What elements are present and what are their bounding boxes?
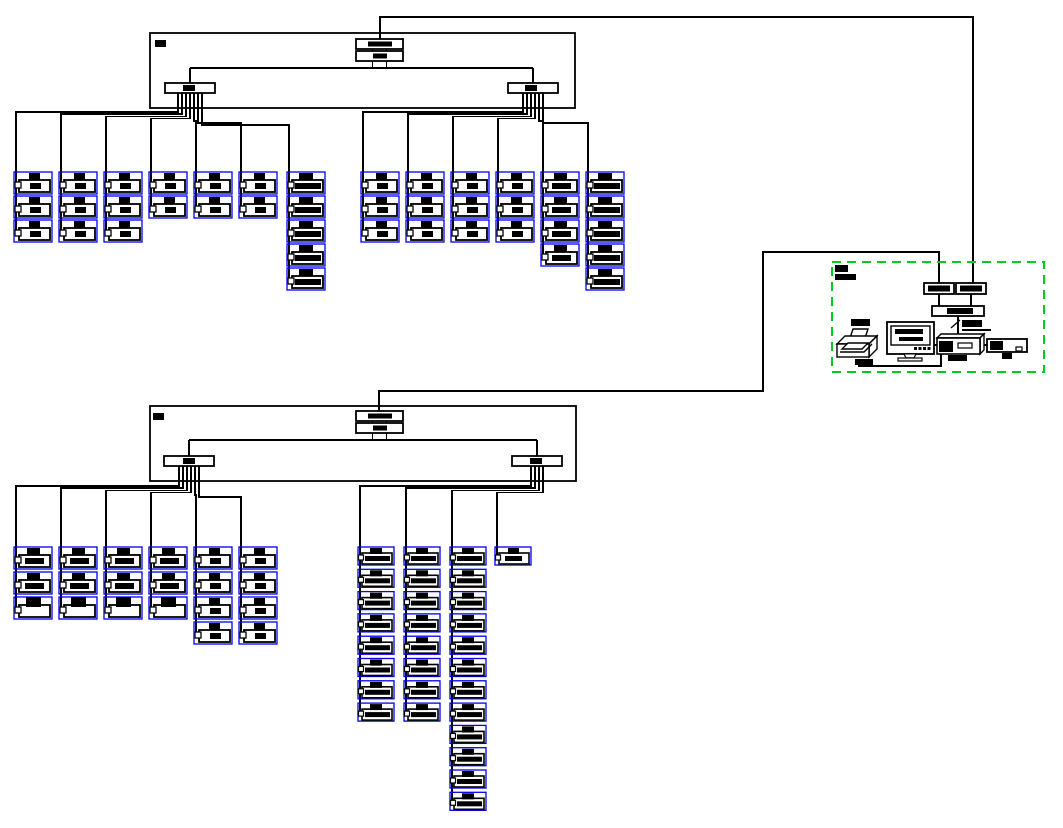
monitoring-station [832,262,1044,372]
station-title-blob-1 [835,265,848,272]
device-block-type-A[interactable] [104,172,142,194]
device-block-type-A[interactable] [194,547,232,569]
device-block-type-A[interactable] [59,172,97,194]
riser-2-left-column-3 [104,547,142,619]
device-block-type-B[interactable] [404,569,440,587]
panel-1-title-blob [155,40,166,47]
device-block-type-A[interactable] [194,572,232,594]
device-block-type-B[interactable] [287,196,325,218]
device-block-type-M[interactable] [59,572,97,594]
device-block-type-A[interactable] [406,220,444,242]
device-block-type-B[interactable] [358,569,394,587]
device-block-type-M[interactable] [14,547,52,569]
riser-2-left-column-5 [194,547,232,644]
pc-vent-blob [939,341,953,352]
converter-2[interactable] [956,283,986,294]
panel-2-title-blob [153,413,164,420]
device-block-type-M[interactable] [541,244,579,266]
device-block-type-B[interactable] [450,725,486,743]
device-block-type-B[interactable] [450,770,486,788]
device-block-type-B[interactable] [404,681,440,699]
device-block-type-A[interactable] [451,196,489,218]
device-block-type-A[interactable] [59,196,97,218]
device-block-type-A[interactable] [451,172,489,194]
device-block-type-A[interactable] [239,547,277,569]
device-block-type-A[interactable] [239,572,277,594]
device-block-type-B[interactable] [586,172,624,194]
riser-1-left-column-3 [104,172,142,242]
device-block-type-B[interactable] [450,703,486,721]
monitor-button-1 [914,347,917,350]
riser-1-left-column-2 [59,172,97,242]
device-block-type-B[interactable] [358,681,394,699]
device-block-type-B[interactable] [404,703,440,721]
device-block-type-B[interactable] [450,681,486,699]
device-block-type-B[interactable] [450,636,486,654]
converter-1-label-blob [928,286,950,292]
device-block-type-A[interactable] [14,172,52,194]
monitor-screen [891,326,930,345]
device-block-type-B[interactable] [586,220,624,242]
drawing-root [0,0,1063,828]
device-block-type-M[interactable] [104,572,142,594]
hub[interactable] [932,306,984,316]
monitor-base [898,358,922,361]
riser-1-right-column-4 [496,172,534,242]
riser-2-right-column-3 [450,547,486,810]
device-block-type-A[interactable] [104,196,142,218]
device-block-type-B[interactable] [450,792,486,810]
screen-text-blob-2 [899,337,923,341]
riser-1-right-column-2 [406,172,444,242]
device-block-type-A[interactable] [149,196,187,218]
device-block-type-A[interactable] [59,220,97,242]
crt-monitor[interactable] [887,322,934,361]
panel-2-riser-bar-2-label-blob [530,458,542,464]
device-block-type-B[interactable] [404,659,440,677]
panel-2-controller-row-1-label-blob [368,414,392,419]
device-block-type-B[interactable] [358,592,394,610]
riser-1-left-column-6 [239,172,277,218]
device-block-type-B[interactable] [450,547,486,565]
device-block-type-M[interactable] [14,572,52,594]
device-block-type-B[interactable] [358,547,394,565]
device-block-type-M[interactable] [104,547,142,569]
device-block-type-B[interactable] [450,748,486,766]
device-block-type-M[interactable] [149,572,187,594]
workstation-pc[interactable] [937,334,984,361]
device-block-type-A[interactable] [239,597,277,619]
station-title-blob-2 [835,274,856,280]
device-block-type-B[interactable] [586,268,624,290]
riser-2-left-column-2 [59,547,97,619]
device-block-type-A[interactable] [239,172,277,194]
device-block-type-A[interactable] [14,220,52,242]
riser-2-left-column-4 [149,547,187,619]
peripheral-device[interactable] [987,339,1027,359]
device-block-type-A[interactable] [361,196,399,218]
peripheral-notch [1016,347,1022,351]
riser-2-right-column-2 [404,547,440,721]
device-block-type-B[interactable] [450,614,486,632]
pc-floppy-slot [958,343,972,348]
device-block-type-A[interactable] [496,196,534,218]
riser-1-left-column-4 [149,172,187,218]
device-block-type-A[interactable] [194,597,232,619]
printer-label-bottom-blob [855,359,873,365]
device-block-type-B[interactable] [358,703,394,721]
device-block-type-B[interactable] [450,592,486,610]
device-block-type-A[interactable] [451,220,489,242]
device-block-type-B[interactable] [358,614,394,632]
device-block-type-C[interactable] [104,597,142,619]
device-block-type-M[interactable] [541,196,579,218]
device-block-type-A[interactable] [406,196,444,218]
device-block-type-B[interactable] [404,592,440,610]
printer[interactable] [837,319,877,365]
riser-1-right-column-5 [541,172,579,266]
device-block-type-B[interactable] [287,220,325,242]
device-block-type-M[interactable] [149,547,187,569]
device-block-type-C[interactable] [149,597,187,619]
device-block-type-A[interactable] [104,220,142,242]
riser-1-right-column-6 [586,172,624,290]
peripheral-dark-blob [990,341,1003,350]
panel-1-controller-row-1-label-blob [368,42,392,47]
monitor-stand [904,354,916,358]
riser-1-left-column-7 [287,172,325,290]
screen-text-blob-1 [895,329,923,334]
device-block-type-A[interactable] [194,196,232,218]
device-block-type-C[interactable] [14,597,52,619]
device-block-type-A[interactable] [361,172,399,194]
wiring-lines [16,17,973,802]
riser-2-right-column-1 [358,547,394,721]
device-block-type-M[interactable] [59,547,97,569]
peripheral-label-blob [1002,353,1012,359]
riser-2-left-column-6 [239,547,277,644]
device-block-type-A[interactable] [194,622,232,644]
printer-label-top-blob [851,319,870,326]
panel-2-controller-row-2-label-blob [373,426,387,431]
panel-2-riser-bar-1-label-blob [183,458,195,464]
device-block-type-M[interactable] [541,172,579,194]
device-block-type-B[interactable] [287,268,325,290]
riser-1-right-column-3 [451,172,489,242]
riser-1-right-column-1 [361,172,399,242]
device-block-type-A[interactable] [194,172,232,194]
connection-tick [951,320,982,328]
device-block-type-B[interactable] [358,636,394,654]
converter-1[interactable] [924,283,954,294]
riser-2-left-column-1 [14,547,52,619]
monitor-button-4 [928,347,931,350]
device-block-type-A[interactable] [406,172,444,194]
device-block-type-B[interactable] [287,244,325,266]
device-block-type-B[interactable] [404,547,440,565]
device-block-type-B[interactable] [404,636,440,654]
panel-1-controller-row-2-label-blob [373,54,387,59]
device-block-type-M[interactable] [495,547,531,565]
device-block-type-M[interactable] [541,220,579,242]
riser-1-left-column-1 [14,172,52,242]
device-block-type-A[interactable] [239,196,277,218]
connection-label-blob [962,320,982,327]
device-block-type-B[interactable] [586,196,624,218]
monitor-button-2 [919,347,922,350]
riser-1-left-column-5 [194,172,232,218]
monitor-button-3 [923,347,926,350]
pc-label-blob [948,355,967,361]
device-block-type-B[interactable] [586,244,624,266]
device-block-type-A[interactable] [361,220,399,242]
device-block-type-B[interactable] [450,659,486,677]
device-block-type-B[interactable] [450,569,486,587]
hub-label-blob [947,308,973,314]
converter-2-label-blob [960,286,982,292]
panel-1-riser-bar-2-label-blob [525,85,537,91]
device-block-type-B[interactable] [404,614,440,632]
cad-diagram-canvas[interactable] [0,0,1063,828]
riser-2-right-column-4 [495,547,531,565]
trunk-line-panel-1 [380,17,973,284]
device-block-type-B[interactable] [358,659,394,677]
device-block-type-A[interactable] [496,172,534,194]
panel-1-riser-bar-1-label-blob [183,85,195,91]
device-block-type-A[interactable] [14,196,52,218]
device-block-type-A[interactable] [239,622,277,644]
device-block-type-C[interactable] [59,597,97,619]
device-block-type-A[interactable] [149,172,187,194]
loop-drop-line [497,466,543,557]
device-block-type-B[interactable] [287,172,325,194]
device-block-type-A[interactable] [496,220,534,242]
